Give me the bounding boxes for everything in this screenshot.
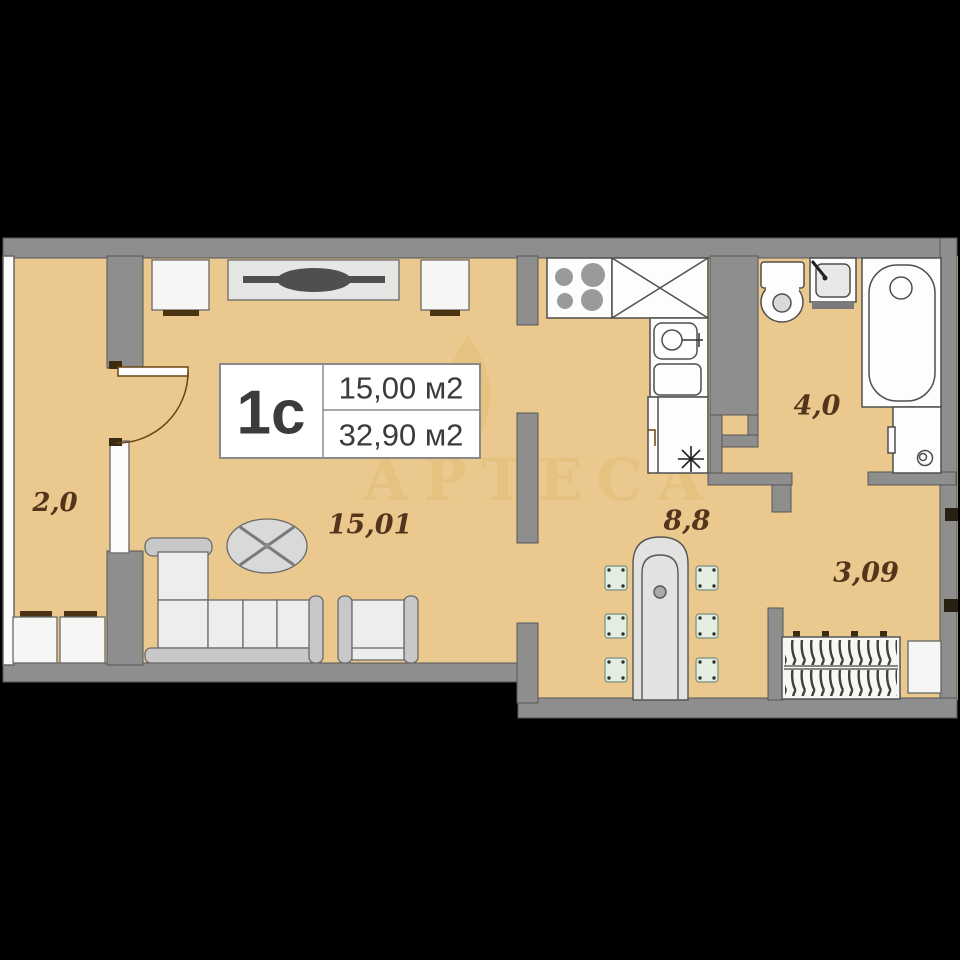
label-hallway: 8,8	[663, 506, 711, 537]
nightstand-right	[421, 260, 469, 310]
wall-hall-stub	[772, 485, 791, 512]
bathtub-icon	[862, 258, 941, 407]
wall-bottom-right	[518, 698, 957, 718]
balcony-shelf-right	[64, 611, 97, 617]
washing-machine-icon	[888, 407, 941, 473]
entry-cabinet	[908, 641, 941, 693]
balcony-partition-window	[110, 441, 129, 553]
coffee-table	[227, 519, 307, 573]
wall-bottom-left	[3, 663, 520, 682]
floorplan-svg: АРТЕСА	[0, 0, 960, 960]
unit-label: 1с	[237, 379, 306, 448]
kitchen-drawer	[654, 364, 701, 395]
wall-bathroom-left-upper	[710, 256, 758, 415]
door-frame-mark-top	[945, 508, 958, 521]
room-area-value: 15,00 м2	[339, 371, 464, 406]
label-living-room: 15,01	[328, 510, 413, 541]
balcony-cabinet-right	[60, 617, 105, 663]
total-area-value: 32,90 м2	[339, 418, 464, 453]
nightstand-left-base	[163, 310, 199, 316]
fridge-icon	[648, 397, 708, 473]
label-entry: 3,09	[833, 558, 899, 589]
armchair	[338, 596, 418, 663]
wall-top	[3, 238, 956, 258]
wall-kitchen-mid	[517, 413, 538, 543]
wall-hall-horizontal	[708, 473, 792, 485]
unit-info-box: 1с 15,00 м2 32,90 м2	[220, 364, 480, 458]
door-hinge-bottom	[109, 438, 122, 446]
label-bathroom: 4,0	[794, 391, 841, 422]
balcony-shelf-left	[20, 611, 52, 617]
wall-kitchen-stub-top	[517, 256, 538, 325]
dining-table-knob	[654, 586, 666, 598]
stove-icon	[547, 258, 612, 318]
wall-bathroom-left-lower	[748, 415, 758, 435]
balcony-cabinet-left	[13, 617, 57, 663]
wall-kitchen-stub-bottom	[517, 623, 538, 703]
nightstand-left	[152, 260, 209, 310]
dining-table	[633, 537, 688, 700]
wardrobe-icon	[782, 631, 900, 699]
wall-bathroom-bottom	[868, 472, 956, 485]
wall-balcony-stub-top	[107, 256, 143, 368]
wall-bathroom-connector	[722, 435, 758, 447]
balcony-window-wall	[3, 256, 14, 665]
wall-balcony-stub-bottom	[107, 551, 143, 665]
bathroom-sink-icon	[810, 258, 856, 309]
kitchen-sink-basin	[654, 323, 697, 359]
sofa-armrest	[309, 596, 323, 663]
door-frame-mark-bottom	[944, 599, 958, 612]
label-balcony: 2,0	[31, 488, 77, 518]
tv-icon	[277, 268, 351, 292]
nightstand-right-base	[430, 310, 460, 316]
toilet-icon	[761, 262, 804, 322]
door-leaf	[118, 367, 188, 376]
floorplan-image: АРТЕСА	[0, 0, 960, 960]
wall-entry-stub	[768, 608, 783, 700]
